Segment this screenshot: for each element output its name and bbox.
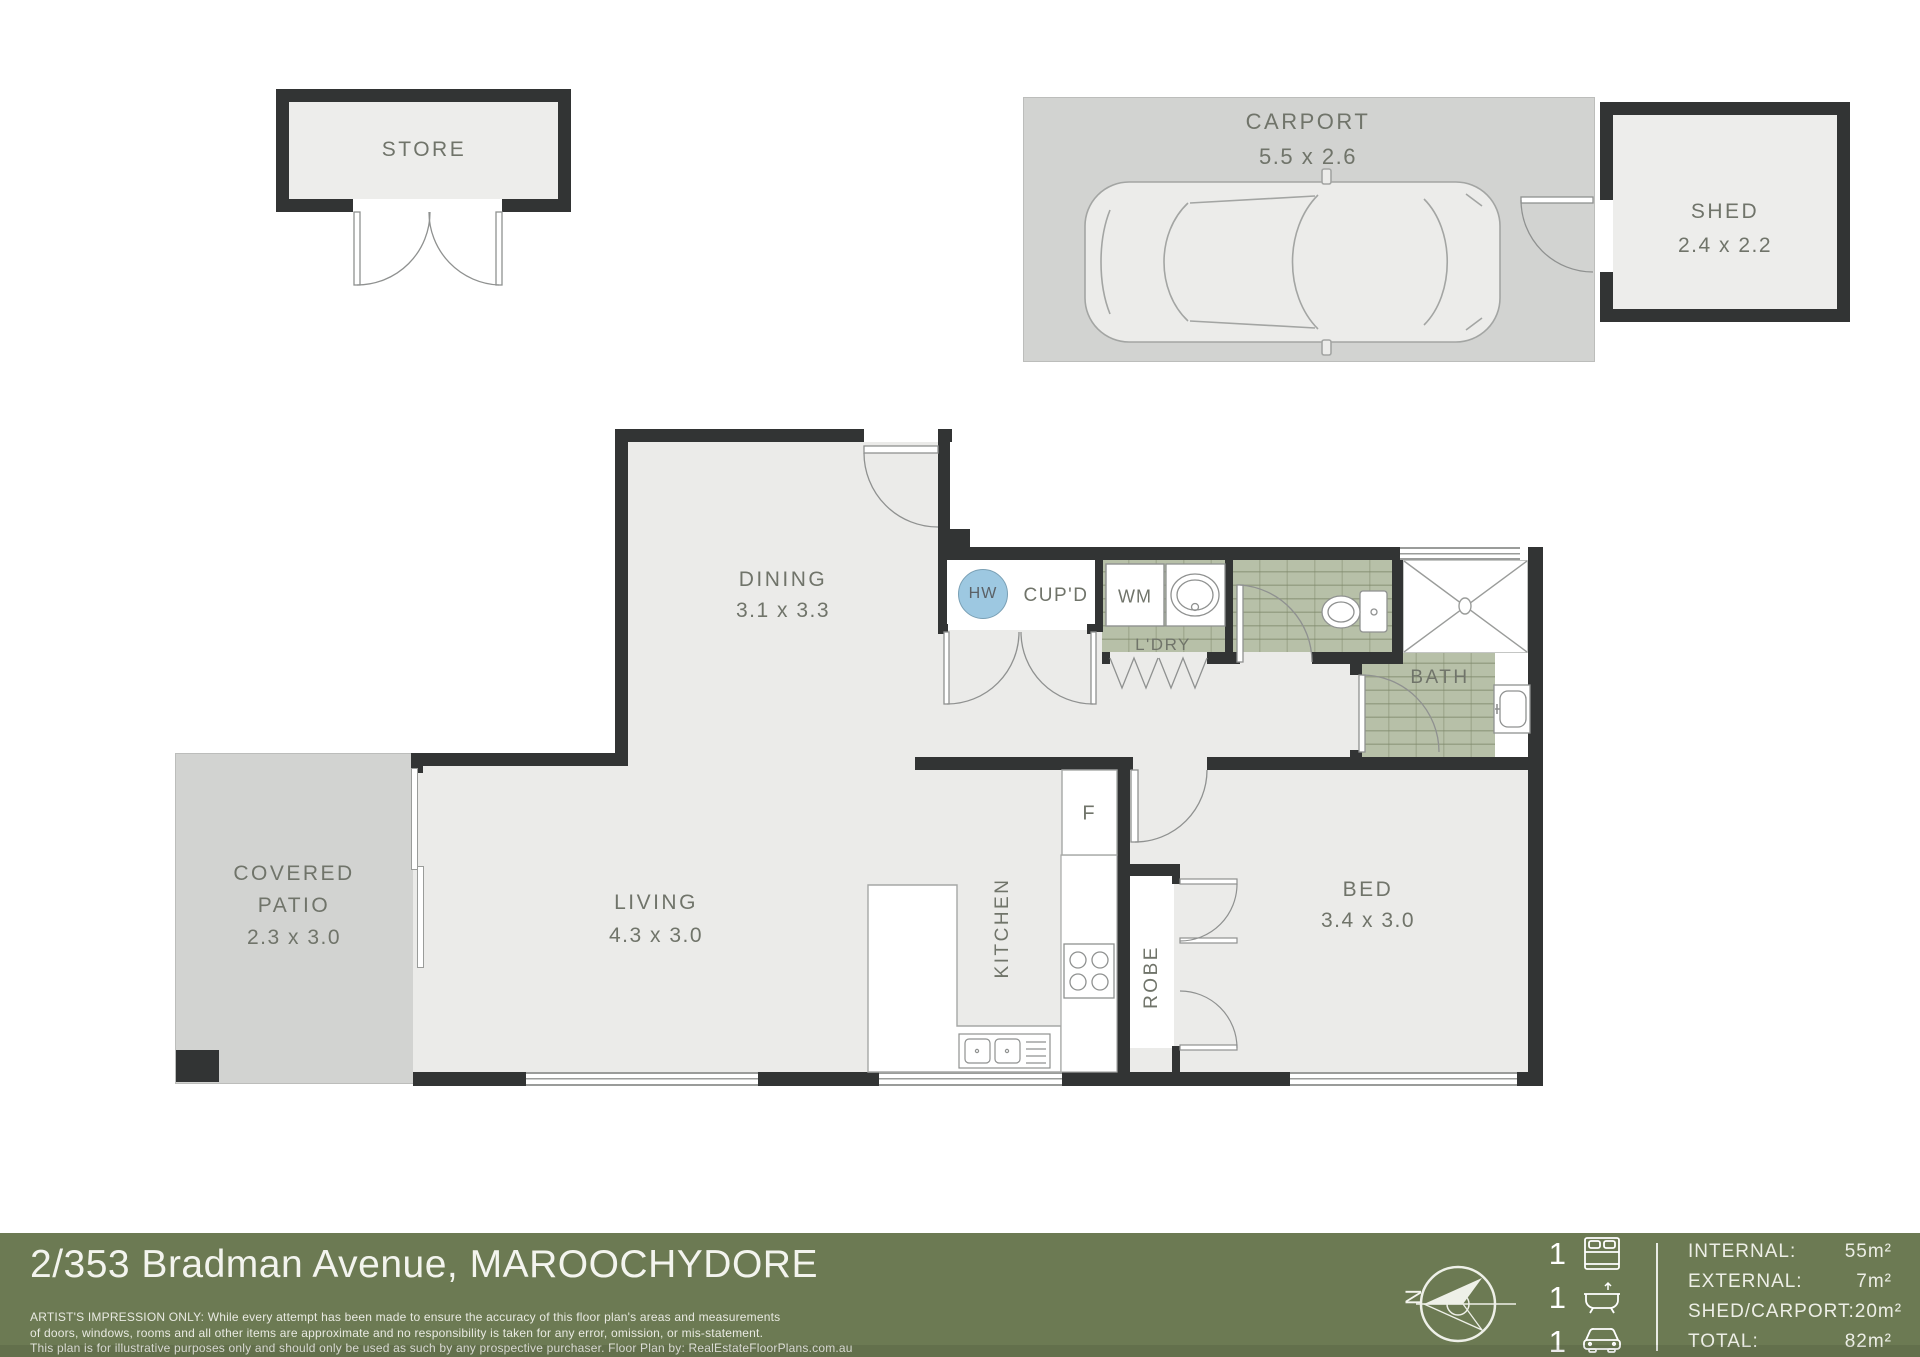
floor-plan-page: STORE CARPORT 5.5 x 2.6 SHED 2.4 x 2.2 D… (0, 0, 1920, 1357)
laundry-bifold-doors (1110, 658, 1207, 688)
shed-label: SHED (1691, 200, 1759, 224)
cooktop (1064, 944, 1114, 998)
laundry-trough (1166, 564, 1225, 626)
stat-label: EXTERNAL: (1688, 1267, 1803, 1297)
hot-water-label: HW (969, 585, 998, 603)
area-stats: INTERNAL: 55m² EXTERNAL: 7m² SHED/CARPOR… (1688, 1237, 1892, 1357)
stat-label: INTERNAL: (1688, 1237, 1796, 1267)
bed-icon (1582, 1236, 1622, 1272)
disclaimer-line-2: of doors, windows, rooms and all other i… (30, 1326, 853, 1342)
robe-label: ROBE (1141, 945, 1163, 1009)
washing-machine-label: WM (1118, 587, 1152, 608)
kitchen-label: KITCHEN (992, 878, 1014, 979)
store-label: STORE (382, 138, 466, 162)
carport-dims: 5.5 x 2.6 (1259, 144, 1357, 170)
cupboard-label: CUP'D (1024, 585, 1089, 607)
stat-value: 55m² (1845, 1237, 1892, 1267)
footer-bar: 2/353 Bradman Avenue, MAROOCHYDORE ARTIS… (0, 1233, 1920, 1357)
living-label: LIVING (614, 891, 698, 915)
kitchen-sink (959, 1034, 1050, 1068)
disclaimer-line-1: ARTIST'S IMPRESSION ONLY: While every at… (30, 1310, 853, 1326)
bath-icon (1582, 1278, 1622, 1316)
compass-north-letter: N (1401, 1289, 1427, 1305)
stat-value: 7m² (1856, 1267, 1892, 1297)
laundry-label: L'DRY (1135, 635, 1191, 655)
dining-dims: 3.1 x 3.3 (736, 599, 830, 623)
living-dims: 4.3 x 3.0 (609, 924, 703, 948)
bath-count: 1 (1540, 1280, 1566, 1316)
toilet (1322, 591, 1387, 632)
wc-door (1237, 585, 1312, 662)
shower-symbol (1404, 561, 1527, 652)
stat-label: SHED/CARPORT: (1688, 1297, 1855, 1327)
patio-label-line2: PATIO (258, 894, 330, 918)
patio-label-line1: COVERED (233, 862, 354, 886)
stat-row-shed-carport: SHED/CARPORT: 20m² (1688, 1297, 1892, 1327)
car-illustration (1085, 169, 1500, 355)
bedroom-door (1131, 770, 1207, 842)
stat-value: 20m² (1855, 1297, 1902, 1327)
robe-doors (1180, 879, 1237, 1050)
entry-door (864, 446, 938, 527)
bath-label: BATH (1410, 667, 1469, 689)
stat-row-internal: INTERNAL: 55m² (1688, 1237, 1892, 1267)
store-double-doors (354, 212, 502, 285)
patio-dims: 2.3 x 3.0 (247, 926, 341, 950)
fixtures-layer (0, 0, 1920, 1357)
bed-count: 1 (1540, 1236, 1566, 1272)
dining-label: DINING (739, 568, 828, 592)
shed-door (1521, 197, 1593, 272)
footer-address: 2/353 Bradman Avenue, MAROOCHYDORE (30, 1243, 818, 1287)
fridge-label: F (1082, 803, 1095, 826)
bath-vanity (1494, 685, 1530, 733)
bed-label: BED (1343, 878, 1394, 902)
stat-row-external: EXTERNAL: 7m² (1688, 1267, 1892, 1297)
carport-label: CARPORT (1246, 109, 1371, 135)
shed-dims: 2.4 x 2.2 (1678, 234, 1772, 258)
footer-bottom-shade (0, 1345, 1920, 1357)
bed-dims: 3.4 x 3.0 (1321, 909, 1415, 933)
cupboard-doors (944, 632, 1096, 704)
footer-divider (1656, 1243, 1658, 1351)
